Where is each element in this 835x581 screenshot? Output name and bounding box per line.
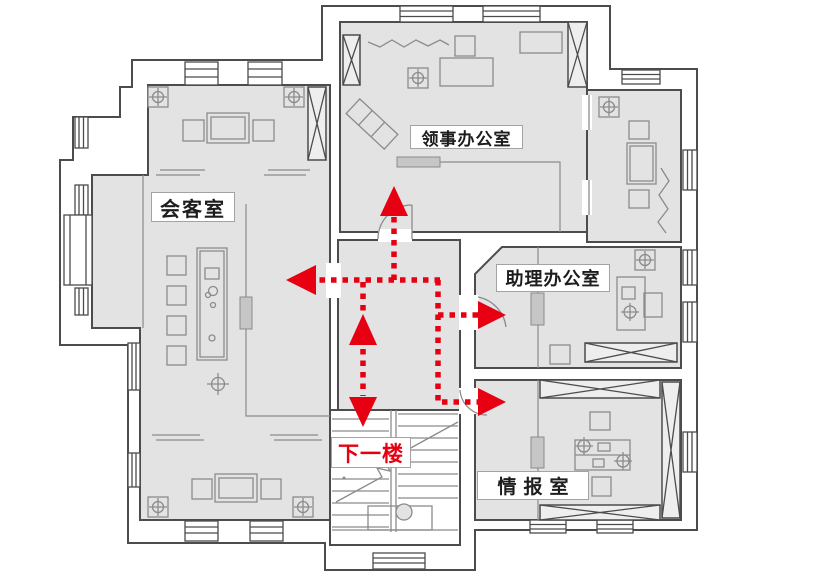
room-label-reception: 会客室 [151,192,235,222]
hallway-floor [338,240,460,410]
ceiling-light-icon [635,250,655,270]
ceiling-light-icon [148,87,168,107]
room-label-consul-office: 领事办公室 [410,125,523,149]
stairwell [330,410,460,545]
bay-window [64,215,92,285]
staircase [332,410,458,532]
ceiling-light-icon [284,87,304,107]
ceiling-light-icon [148,497,168,517]
ceiling-light-icon [599,97,619,117]
floor-plan: 会客室 领事办公室 助理办公室 情报室 下一楼 [0,0,835,581]
stairs-down-label: 下一楼 [331,437,411,468]
floor-plan-drawing [0,0,835,581]
ceiling-light-icon [293,497,313,517]
newel-post [396,504,412,520]
stair-stringer [391,410,396,532]
room-label-assistant-office: 助理办公室 [496,264,610,292]
room-label-intelligence-room: 情报室 [477,471,589,500]
ceiling-light-icon [408,68,428,88]
